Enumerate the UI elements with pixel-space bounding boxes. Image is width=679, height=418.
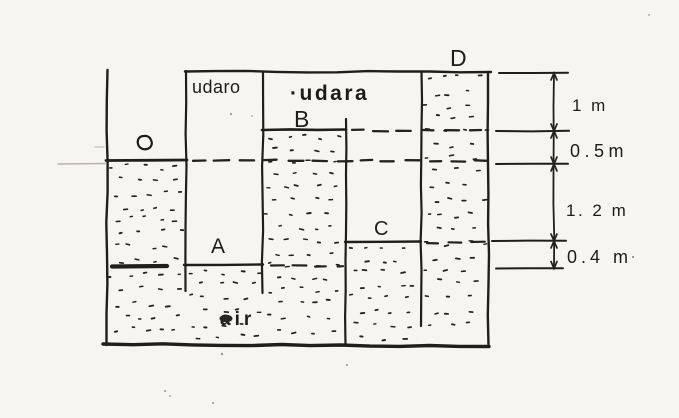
svg-text:·udara: ·udara	[290, 82, 369, 105]
svg-text:C: C	[374, 218, 388, 240]
svg-text:0.4 m: 0.4 m	[567, 247, 632, 267]
svg-text:D: D	[450, 45, 467, 71]
svg-text:B: B	[294, 106, 309, 132]
svg-text:1. 2 m: 1. 2 m	[566, 201, 628, 220]
svg-text:1 m: 1 m	[572, 96, 608, 115]
svg-text:0.5m: 0.5m	[570, 141, 628, 161]
svg-text:A: A	[211, 235, 225, 258]
svg-text:udaro: udaro	[192, 77, 241, 97]
